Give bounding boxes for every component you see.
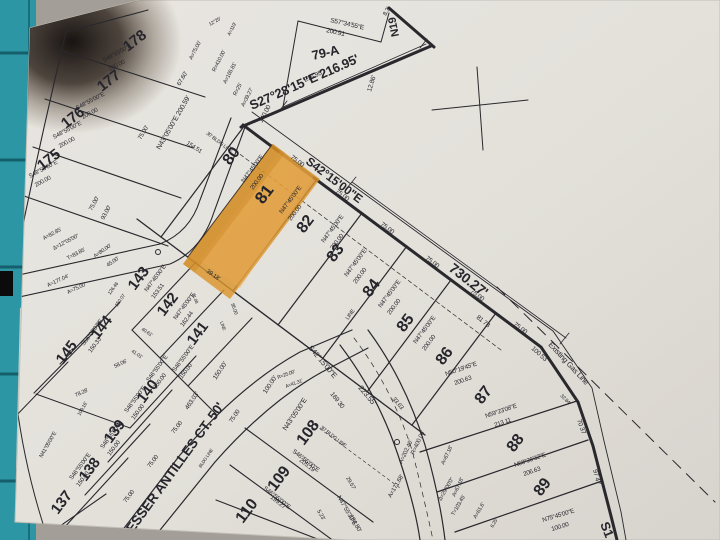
plat-map-svg: S57°34'55"E200.9179-A216.95'S27°28'15"E … bbox=[0, 0, 720, 540]
plat-map-photo: S57°34'55"E200.9179-A216.95'S27°28'15"E … bbox=[0, 0, 720, 540]
mat-marking bbox=[0, 271, 13, 296]
